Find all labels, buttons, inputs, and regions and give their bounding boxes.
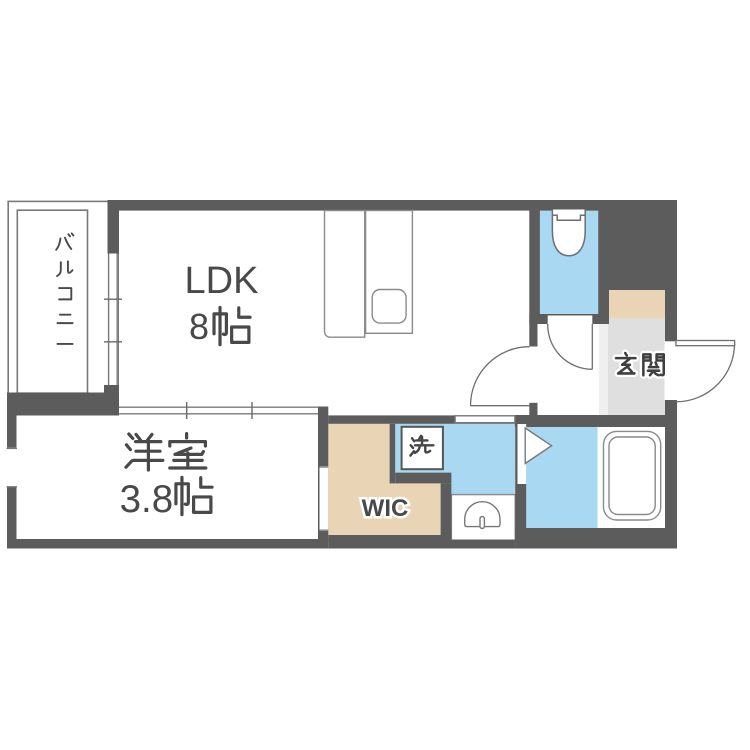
svg-text:WIC: WIC: [362, 495, 409, 522]
svg-text:3.8: 3.8: [120, 478, 174, 521]
svg-text:8: 8: [189, 306, 209, 347]
svg-text:LDK: LDK: [185, 260, 259, 302]
